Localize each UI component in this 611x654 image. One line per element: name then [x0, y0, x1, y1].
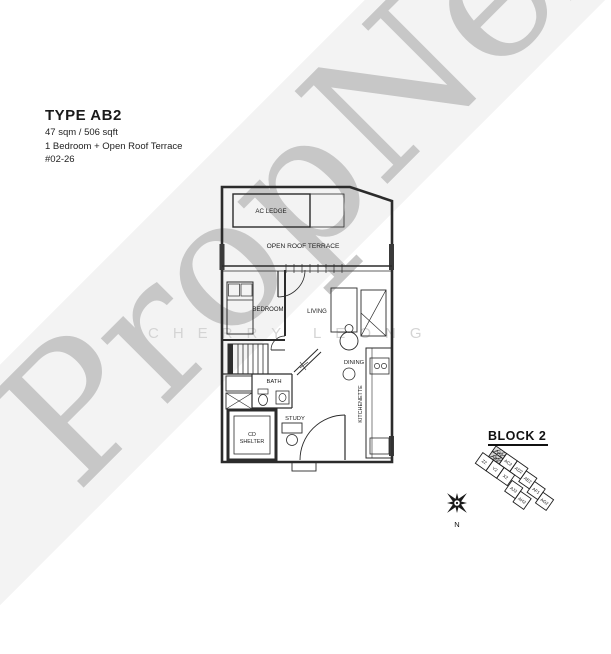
cd-shelter-label-line1: CD [248, 432, 256, 438]
unit-description: 1 Bedroom + Open Roof Terrace [45, 141, 182, 152]
kitchenette-label: KITCHENETTE [358, 385, 364, 423]
cd-shelter-label-line2: SHELTER [240, 439, 265, 445]
keyplan-unit-ah2: AH2 [517, 496, 527, 505]
compass-north-label: N [454, 520, 459, 529]
keyplan-unit-af1: AF1 [531, 486, 541, 495]
floorplan-drawing: AC LEDGE OPEN ROOF TERRACE BEDROOM LIVIN… [0, 0, 611, 600]
keyplan-unit-aj2: AJ2 [509, 485, 519, 494]
floorplan-page: PropNex CHERRY LEONG TYPE AB2 47 sqm / 5… [0, 0, 611, 600]
unit-area: 47 sqm / 506 sqft [45, 127, 182, 138]
study-label: STUDY [285, 416, 305, 422]
ac-ledge-label: AC LEDGE [255, 208, 286, 215]
keyplan-unit-ad2: AD2 [514, 466, 524, 475]
compass-rose-icon [437, 483, 477, 523]
keyplan-unit-ag2: AG2 [539, 497, 550, 506]
keyplan-unit-y2: Y2 [491, 466, 499, 473]
dining-label: DINING [344, 360, 365, 366]
living-label: LIVING [307, 309, 327, 315]
unit-number: #02-26 [45, 154, 182, 165]
bath-label: BATH [266, 379, 281, 385]
keyplan-unit-x2: X2 [502, 473, 510, 480]
keyplan-title: BLOCK 2 [488, 429, 548, 446]
keyplan-diagram: AA2 AB2 AC2 AD2 AE2 AF1 AG2 Z2 Y2 X2 AJ2… [470, 442, 560, 520]
unit-type-title: TYPE AB2 [45, 107, 182, 124]
keyplan-unit-ac2: AC2 [503, 458, 513, 467]
terrace-label: OPEN ROOF TERRACE [267, 243, 340, 250]
keyplan-unit-ae2: AE2 [523, 476, 533, 485]
bedroom-label: BEDROOM [252, 307, 283, 313]
unit-header: TYPE AB2 47 sqm / 506 sqft 1 Bedroom + O… [45, 107, 182, 168]
keyplan-unit-z2: Z2 [481, 458, 489, 465]
floorplan-walls [220, 187, 395, 471]
